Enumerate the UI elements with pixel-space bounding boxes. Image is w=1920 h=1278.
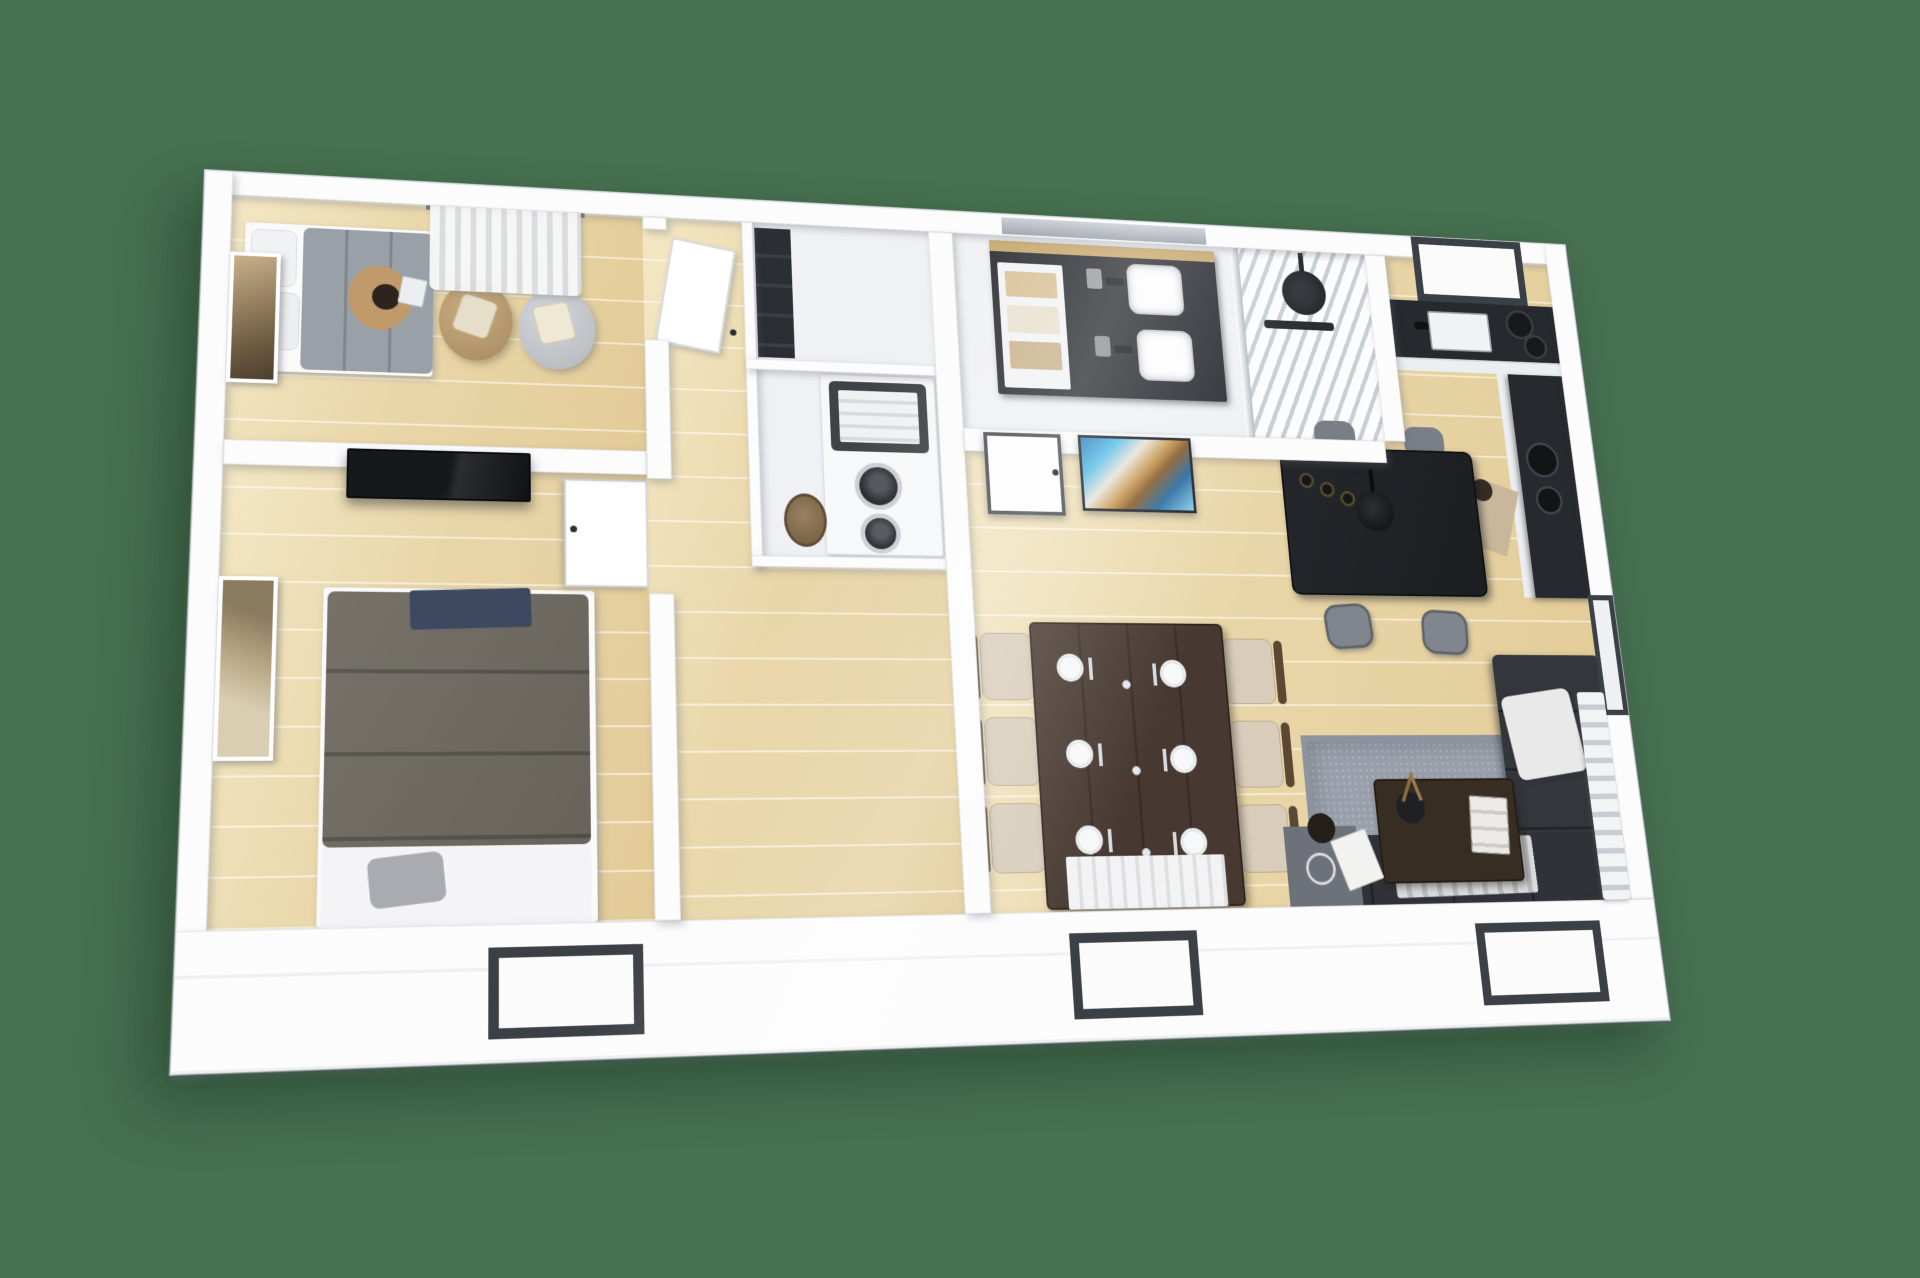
dining-chair-cushion bbox=[1228, 721, 1284, 788]
wine-glass bbox=[1132, 766, 1142, 776]
vanity-soap-1 bbox=[1086, 268, 1103, 289]
master-bed-pillow bbox=[366, 851, 447, 910]
vessel-sink-2 bbox=[1136, 329, 1196, 382]
master-door-leaf bbox=[564, 478, 649, 587]
dining-chair-cushion bbox=[989, 803, 1047, 874]
vanity-towel-1 bbox=[1005, 271, 1058, 299]
bedroom2-wall-art bbox=[213, 576, 278, 761]
bar-stool-near-1 bbox=[1322, 603, 1376, 650]
floor-plan bbox=[170, 170, 1670, 1075]
coffee-table-books bbox=[1469, 795, 1510, 854]
bar-stool-near-2 bbox=[1421, 609, 1470, 656]
dining-chair-cushion bbox=[979, 633, 1036, 701]
wall-bedhall-a bbox=[642, 217, 666, 230]
vessel-sink-1 bbox=[1126, 264, 1185, 317]
bedroom1-wall-art bbox=[226, 251, 281, 383]
master-bed-duvet bbox=[322, 591, 591, 847]
front-window-left bbox=[488, 944, 644, 1040]
person-reading-bed-head bbox=[372, 283, 400, 310]
wall-bedhall-b bbox=[645, 339, 672, 479]
master-door-handle bbox=[570, 526, 577, 533]
laundry-towels bbox=[838, 390, 920, 444]
person-reading-bed-book bbox=[397, 276, 428, 308]
abstract-wall-art bbox=[1078, 435, 1197, 513]
wall-tv bbox=[346, 448, 531, 502]
wine-glass bbox=[1122, 680, 1132, 689]
bathroom-door-handle bbox=[1052, 469, 1059, 475]
front-window-middle bbox=[1069, 930, 1203, 1019]
closet-dark-cabinet bbox=[754, 228, 795, 359]
bedroom1-curtain bbox=[429, 205, 581, 296]
dining-chair-cushion bbox=[984, 717, 1041, 786]
master-bed-navy-throw bbox=[409, 588, 531, 630]
kitchen-faucet bbox=[1414, 322, 1429, 330]
bedroom1-door-handle bbox=[730, 329, 737, 335]
master-bed-sheet bbox=[320, 844, 591, 928]
vanity-soap-2 bbox=[1094, 336, 1111, 357]
vanity-towel-2 bbox=[1007, 305, 1060, 335]
vanity-faucet-1 bbox=[1105, 277, 1124, 285]
dining-chair-cushion bbox=[1221, 638, 1277, 704]
front-window-right bbox=[1475, 920, 1610, 1005]
vanity-towel-3 bbox=[1009, 341, 1063, 371]
table-runner bbox=[1066, 854, 1229, 909]
vanity-faucet-2 bbox=[1114, 345, 1133, 353]
kitchen-window bbox=[1410, 236, 1527, 306]
scene bbox=[0, 0, 1920, 1278]
kitchen-sink bbox=[1427, 311, 1493, 353]
